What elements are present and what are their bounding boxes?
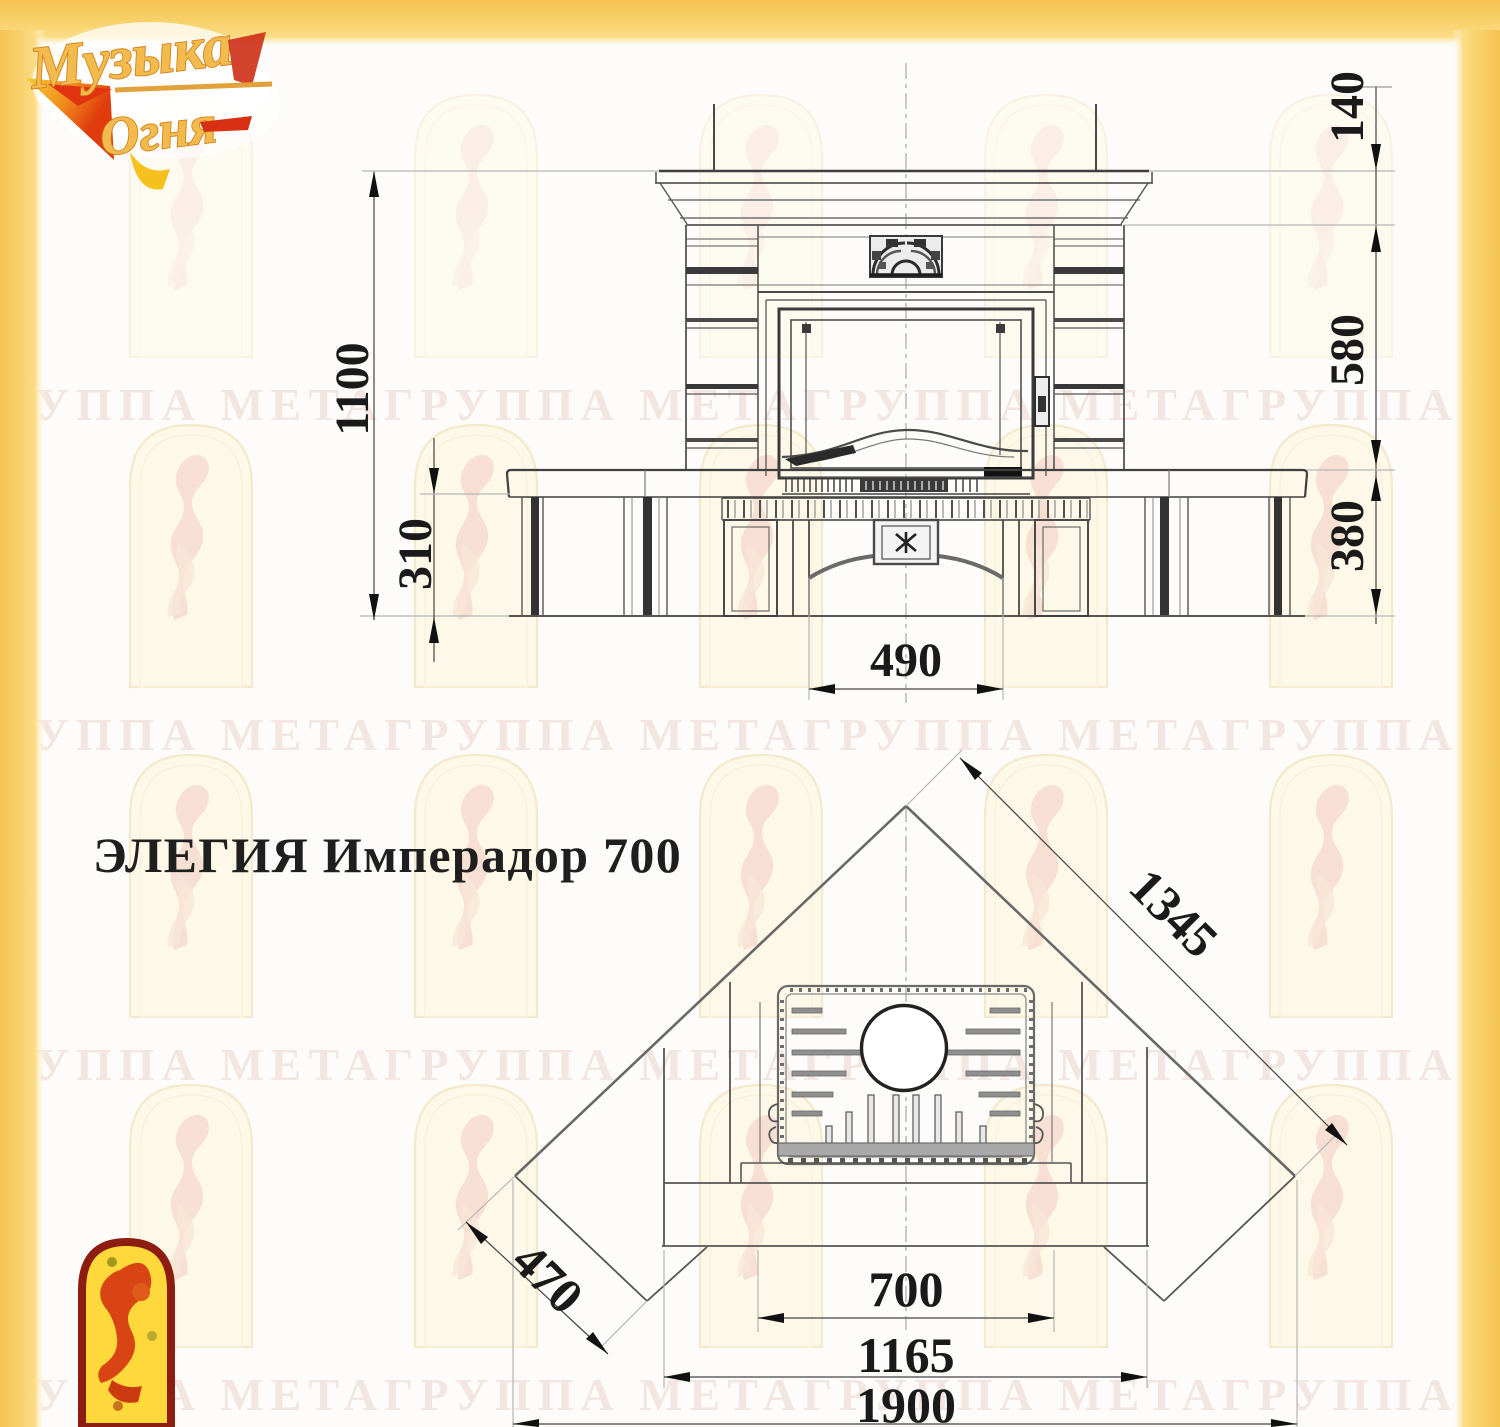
svg-text:700: 700 — [869, 1261, 944, 1317]
svg-text:1900: 1900 — [856, 1377, 956, 1427]
svg-text:1165: 1165 — [857, 1327, 954, 1383]
svg-text:1100: 1100 — [326, 342, 379, 435]
svg-text:310: 310 — [389, 518, 442, 590]
svg-text:580: 580 — [1321, 314, 1374, 386]
svg-text:ГРУППА МЕТАГРУППА МЕТАГРУППА М: ГРУППА МЕТАГРУППА МЕТАГРУППА МЕТАГРУППА … — [0, 709, 1500, 760]
svg-text:ГРУППА МЕТАГРУППА МЕТАГРУППА М: ГРУППА МЕТАГРУППА МЕТАГРУППА МЕТАГРУППА … — [0, 1039, 1500, 1090]
svg-text:380: 380 — [1321, 500, 1374, 572]
svg-text:ЭЛЕГИЯ Имперадор 700: ЭЛЕГИЯ Имперадор 700 — [93, 827, 682, 883]
svg-text:490: 490 — [870, 634, 942, 687]
svg-text:140: 140 — [1321, 71, 1374, 143]
